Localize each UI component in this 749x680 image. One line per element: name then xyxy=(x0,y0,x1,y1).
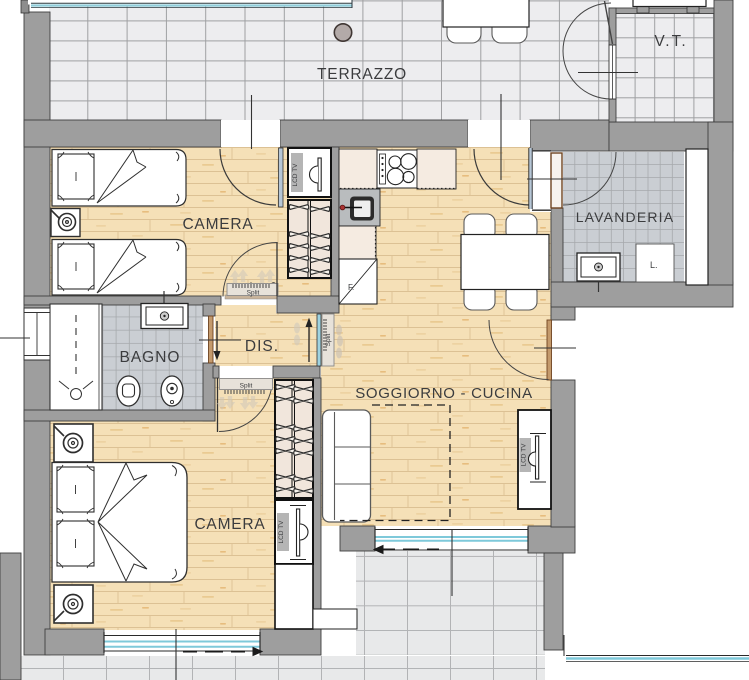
svg-text:Split: Split xyxy=(240,383,253,390)
svg-text:LCD TV: LCD TV xyxy=(292,163,299,187)
svg-text:Split: Split xyxy=(325,333,332,346)
svg-text:LAVANDERIA: LAVANDERIA xyxy=(576,209,675,225)
svg-text:BAGNO: BAGNO xyxy=(120,349,181,366)
svg-text:V.T.: V.T. xyxy=(654,33,687,50)
svg-text:LCD TV: LCD TV xyxy=(521,443,528,467)
svg-text:CAMERA: CAMERA xyxy=(194,516,265,533)
svg-text:DIS.: DIS. xyxy=(245,338,279,355)
svg-text:Split: Split xyxy=(247,290,260,297)
svg-text:L.: L. xyxy=(650,260,658,270)
svg-text:CAMERA: CAMERA xyxy=(182,216,253,233)
svg-text:SOGGIORNO - CUCINA: SOGGIORNO - CUCINA xyxy=(355,385,533,402)
svg-text:F.: F. xyxy=(348,283,354,292)
svg-text:TERRAZZO: TERRAZZO xyxy=(317,66,407,83)
svg-text:LCD TV: LCD TV xyxy=(278,520,285,544)
